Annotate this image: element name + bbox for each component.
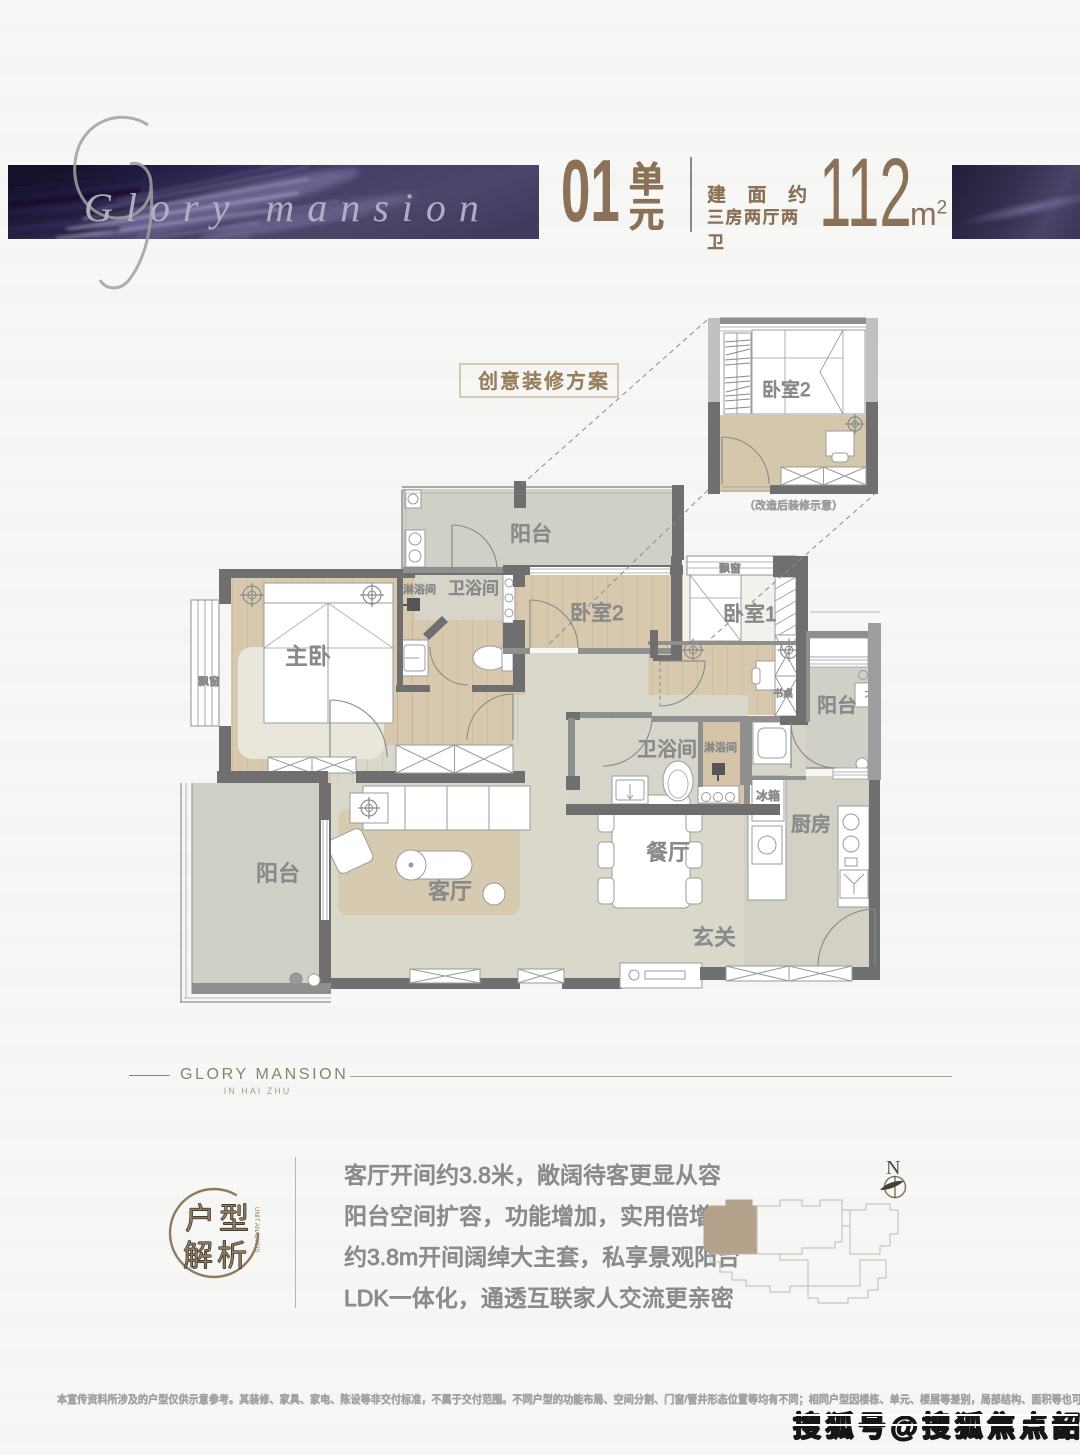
svg-text:主卧: 主卧: [285, 643, 331, 669]
svg-text:玄关: 玄关: [692, 925, 736, 950]
svg-text:卧室2: 卧室2: [762, 379, 811, 401]
svg-text:餐厅: 餐厅: [646, 840, 690, 865]
svg-text:UNIT ANALYSIS: UNIT ANALYSIS: [253, 1207, 260, 1253]
svg-text:卫浴间: 卫浴间: [637, 738, 697, 761]
svg-text:阳台: 阳台: [256, 861, 300, 886]
svg-text:淋浴间: 淋浴间: [704, 741, 737, 754]
svg-text:书桌: 书桌: [773, 687, 793, 700]
svg-text:冰箱: 冰箱: [756, 788, 780, 803]
svg-text:客厅: 客厅: [428, 879, 472, 904]
svg-text:阳台: 阳台: [817, 694, 857, 717]
svg-text:阳台: 阳台: [510, 523, 552, 546]
svg-text:厨房: 厨房: [791, 813, 831, 836]
svg-text:卧室1: 卧室1: [723, 603, 777, 626]
svg-text:创意装修方案: 创意装修方案: [478, 370, 610, 393]
svg-text:户型: 户型: [185, 1203, 253, 1236]
svg-text:N: N: [886, 1157, 900, 1179]
svg-text:卫浴间: 卫浴间: [448, 579, 499, 598]
svg-text:（改造后装修示意）: （改造后装修示意）: [744, 498, 843, 512]
svg-text:飘窗: 飘窗: [719, 561, 741, 575]
svg-text:淋浴间: 淋浴间: [403, 583, 436, 596]
svg-text:飘窗: 飘窗: [198, 674, 220, 688]
svg-text:卧室2: 卧室2: [570, 602, 624, 625]
svg-text:解析: 解析: [183, 1240, 251, 1273]
